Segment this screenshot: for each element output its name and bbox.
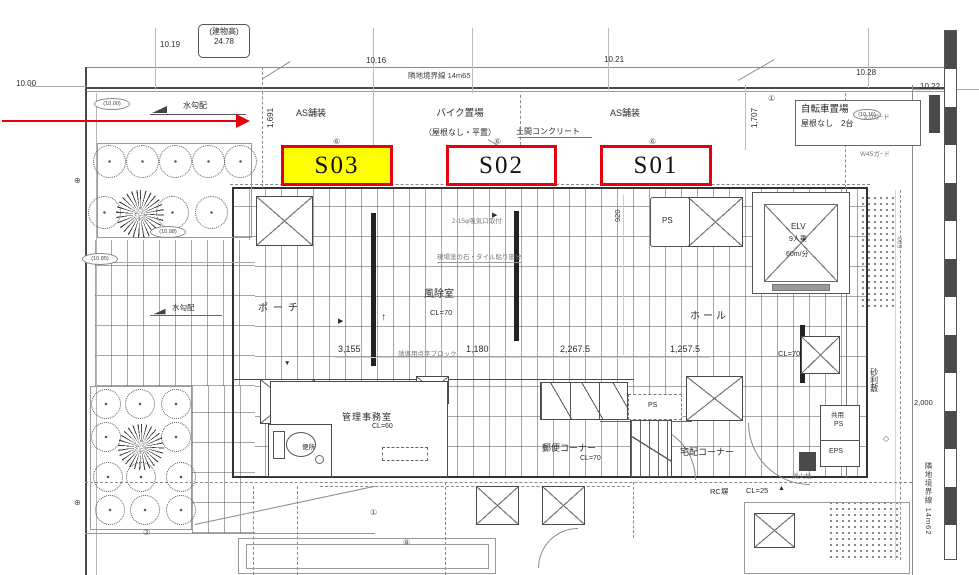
vestibule-label: 風除室 xyxy=(424,289,454,301)
plan-dash xyxy=(520,95,521,150)
diagonal-line xyxy=(263,61,291,79)
hall-label: ホール xyxy=(690,311,729,323)
plan-line xyxy=(232,187,868,189)
shrub xyxy=(118,424,164,470)
dim-1691: 1,691 xyxy=(266,108,276,128)
plan-line xyxy=(472,28,473,93)
ref-mark: ① xyxy=(768,94,775,103)
unit-s01[interactable]: S01 xyxy=(600,145,712,186)
toilet-sink xyxy=(315,455,324,464)
x-column xyxy=(688,197,743,247)
ps-mid-label: PS xyxy=(648,402,657,410)
cl-office: CL=60 xyxy=(372,423,393,431)
toilet-label: 便所 xyxy=(302,444,315,452)
bicycle-parking-line2: 屋根なし 2台 xyxy=(801,119,853,129)
bicycle-parking-line1: 自転車置場 xyxy=(801,104,849,115)
mailbox-unit xyxy=(540,382,628,420)
cl-outside: CL=25 xyxy=(746,486,768,495)
shared-ps-divider xyxy=(820,440,860,441)
shared-ps-line2: PS xyxy=(834,421,843,429)
elevation-1019: 10.19 xyxy=(160,40,180,50)
plan-line xyxy=(518,137,592,138)
x-column xyxy=(801,336,840,374)
spot-level-1000: (10.00) xyxy=(94,98,130,110)
tree xyxy=(192,145,225,178)
pointer-arrow-head xyxy=(236,114,250,128)
unit-s02-label: S02 xyxy=(479,152,524,180)
elevator-door xyxy=(772,284,830,291)
as-paving-left: AS舗装 xyxy=(296,108,326,119)
tree xyxy=(95,495,125,525)
plan-line xyxy=(85,533,375,534)
flow-arrow-right-1: ▶ xyxy=(338,318,343,326)
x-column xyxy=(686,376,743,421)
tree xyxy=(161,389,191,419)
note-guard2: W45ガ−ド xyxy=(860,151,890,159)
plan-line xyxy=(85,87,947,89)
tree xyxy=(93,462,123,492)
spot-level-1098: (10.98) xyxy=(150,226,186,238)
plan-line xyxy=(371,213,376,366)
hydrant-box xyxy=(799,452,816,471)
tree xyxy=(91,389,121,419)
ref-mark: ⊕ xyxy=(74,498,81,507)
plan-line xyxy=(155,28,156,90)
ref-mark: ⊕ xyxy=(74,176,81,185)
survey-strip xyxy=(944,30,957,560)
dim-3155: 3,155 xyxy=(338,344,361,355)
elevation-left: 10.00 xyxy=(16,79,36,89)
pointer-arrow-line xyxy=(2,120,240,122)
dim-12575: 1,257.5 xyxy=(670,344,700,355)
plan-line xyxy=(745,85,746,150)
dim-1180: 1,180 xyxy=(466,344,489,355)
triangle-mark: ▲ xyxy=(778,485,785,493)
tree xyxy=(125,389,155,419)
office-label: 管理事務室 xyxy=(342,412,392,423)
plan-line xyxy=(85,67,947,68)
tree xyxy=(126,145,159,178)
shared-ps-line1: 共用 xyxy=(831,412,844,420)
plan-line xyxy=(30,86,86,87)
x-column xyxy=(754,513,795,548)
plan-line xyxy=(150,114,246,115)
elevation-right: 10.22 xyxy=(920,82,940,92)
tree xyxy=(224,145,257,178)
plan-dash xyxy=(633,482,634,538)
slope-symbol-top xyxy=(152,106,167,113)
plan-dash xyxy=(262,67,263,188)
slope-label-top: 水勾配 xyxy=(183,101,207,111)
tree xyxy=(93,145,126,178)
tree xyxy=(130,495,160,525)
note-guard1: 9.0ガ−ド xyxy=(864,114,890,122)
elevation-1016: 10.16 xyxy=(366,56,386,66)
office-desk xyxy=(382,447,428,461)
unit-s02[interactable]: S02 xyxy=(446,145,557,186)
drain-mark: ▼ xyxy=(284,360,290,368)
tree xyxy=(91,422,121,452)
diagonal-line xyxy=(738,59,775,81)
plan-line xyxy=(514,211,519,341)
unit-s03[interactable]: S03 xyxy=(281,145,393,186)
tree xyxy=(159,145,192,178)
tree xyxy=(195,196,228,229)
floor-plan: 10.00 10.19 (建物高) 24.78 10.16 隣地境界線 14m6… xyxy=(0,0,979,575)
elv-label: ELV xyxy=(791,222,806,232)
rc-wall-label: RC塀 xyxy=(710,487,728,496)
note-tile: 現場塗の石・タイル貼り部分 xyxy=(437,254,522,263)
dim-500: 500 xyxy=(897,237,905,248)
survey-patch xyxy=(929,95,940,133)
mail-corner-label: 郵便コーナー xyxy=(542,443,596,454)
gravel-label: 砂利敷 xyxy=(869,368,879,392)
dim-22675: 2,267.5 xyxy=(560,344,590,355)
ref-mark: ① xyxy=(370,508,377,517)
delivery-corner-label: 宅配コーナー xyxy=(680,447,734,458)
flow-arrow-up: ↑ xyxy=(381,312,386,324)
slope-symbol-left xyxy=(154,309,166,315)
callout-line1: (建物高) xyxy=(209,27,238,36)
x-column xyxy=(542,486,585,525)
plan-line xyxy=(335,357,710,358)
unit-s01-label: S01 xyxy=(634,152,679,180)
tree xyxy=(166,462,196,492)
tile-paving xyxy=(192,386,255,533)
dim-920: 920 xyxy=(613,209,622,222)
plan-line xyxy=(150,315,222,316)
cl-hall: CL=70 xyxy=(778,349,800,358)
plan-outline xyxy=(246,544,489,569)
as-paving-right: AS舗装 xyxy=(610,108,640,119)
toilet-tank xyxy=(273,431,285,459)
tree xyxy=(161,422,191,452)
plan-line xyxy=(85,67,87,575)
plan-line xyxy=(912,85,913,575)
plan-line xyxy=(373,28,374,150)
building-height-callout: (建物高) 24.78 xyxy=(198,24,250,58)
dim-1707: 1,707 xyxy=(750,108,760,128)
door-arc xyxy=(538,528,578,568)
tree xyxy=(166,495,196,525)
note-tactile: 誘導用点字ブロック xyxy=(398,351,457,359)
flow-arrow-right-2: ▶ xyxy=(492,212,497,220)
elv-speed: 60m/分 xyxy=(786,251,809,259)
stairs xyxy=(630,420,672,477)
doma-concrete-label: 土間コンクリート xyxy=(516,127,580,137)
callout-line2: 24.78 xyxy=(214,37,234,46)
unit-s03-label: S03 xyxy=(315,152,360,180)
ref-mark: ② xyxy=(143,528,150,537)
plan-line xyxy=(85,91,947,92)
plan-line xyxy=(868,28,869,88)
cl-vestibule: CL=70 xyxy=(430,308,452,317)
boundary-top-label: 隣地境界線 14m65 xyxy=(408,71,471,80)
x-column xyxy=(476,486,519,525)
spot-level-1085: (10.85) xyxy=(82,253,118,265)
x-column xyxy=(256,196,313,246)
porch-label: ポーチ xyxy=(258,303,303,315)
plan-dash xyxy=(85,482,912,483)
hydrant-label: 消火栓 xyxy=(792,473,812,481)
dim-2000: 2,000 xyxy=(914,398,933,407)
bike-parking-label: バイク置場 （屋根なし・平置） xyxy=(400,102,520,140)
eps-label: EPS xyxy=(829,448,843,456)
elevation-1028: 10.28 xyxy=(856,68,876,78)
cl-mail: CL=70 xyxy=(580,455,601,463)
elevation-1021: 10.21 xyxy=(604,55,624,65)
ref-mark: ⑧ xyxy=(403,538,410,547)
plan-line xyxy=(623,195,624,355)
ref-mark: ◇ xyxy=(883,434,889,443)
slope-label-left: 水勾配 xyxy=(172,303,195,312)
elv-capacity: 9人乗 xyxy=(789,236,807,244)
plan-line xyxy=(866,187,868,478)
ps-top-label: PS xyxy=(662,216,673,226)
boundary-right-label: 隣地境界線 14m62 xyxy=(924,462,933,536)
